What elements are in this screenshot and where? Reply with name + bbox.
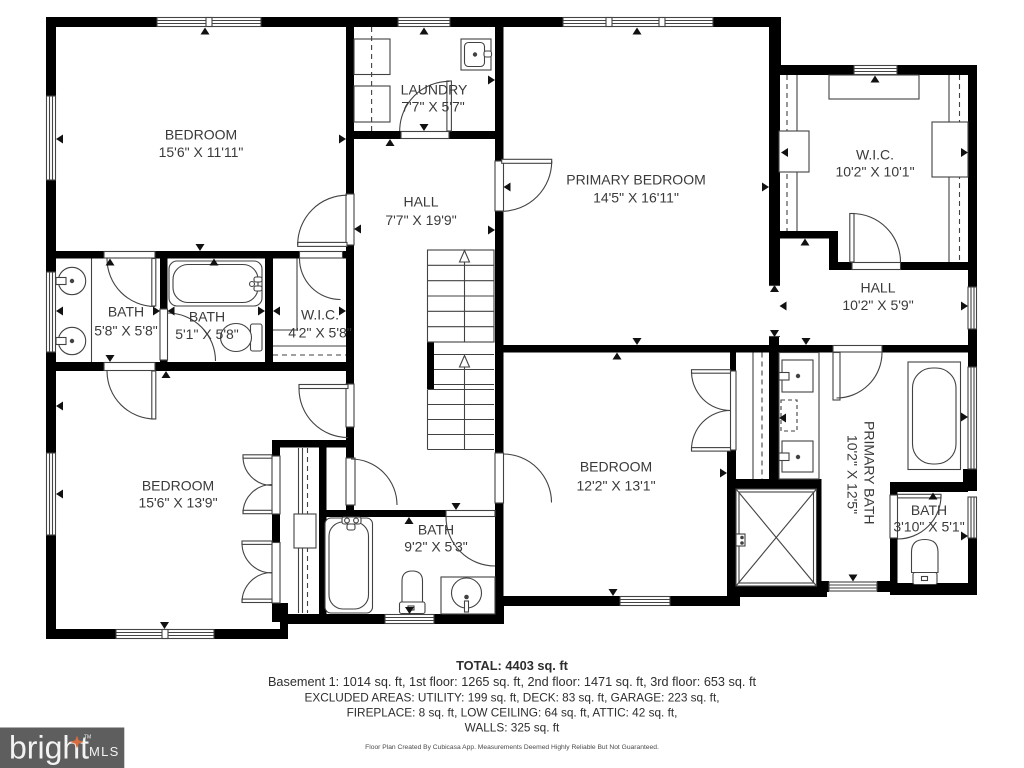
svg-text:PRIMARY BATH: PRIMARY BATH [862,421,878,524]
svg-text:BEDROOM: BEDROOM [580,459,652,475]
svg-text:BATH: BATH [418,522,454,538]
svg-text:LAUNDRY: LAUNDRY [401,82,468,98]
svg-text:PRIMARY BEDROOM: PRIMARY BEDROOM [566,172,706,188]
svg-text:EXCLUDED AREAS: UTILITY: 199 s: EXCLUDED AREAS: UTILITY: 199 sq. ft, DEC… [304,691,719,705]
svg-text:TM: TM [84,735,91,741]
svg-text:12'2" X 13'1": 12'2" X 13'1" [576,478,655,494]
svg-text:10'2" X 12'5": 10'2" X 12'5" [844,435,860,514]
svg-text:HALL: HALL [860,280,895,296]
svg-text:TOTAL: 4403 sq. ft: TOTAL: 4403 sq. ft [456,658,569,673]
svg-text:MLS: MLS [89,744,120,759]
svg-text:W.I.C.: W.I.C. [856,147,894,163]
svg-text:FIREPLACE: 8 sq. ft, LOW CEILI: FIREPLACE: 8 sq. ft, LOW CEILING: 64 sq.… [347,706,678,720]
svg-text:14'5" X 16'11": 14'5" X 16'11" [593,190,679,206]
svg-text:WALLS: 325 sq. ft: WALLS: 325 sq. ft [465,721,560,735]
svg-text:7'7" X 19'9": 7'7" X 19'9" [385,212,456,228]
svg-text:BEDROOM: BEDROOM [165,127,237,143]
svg-text:BATH: BATH [108,304,144,320]
svg-text:15'6" X 11'11": 15'6" X 11'11" [159,144,244,160]
svg-text:9'2" X 5'3": 9'2" X 5'3" [404,539,468,555]
svg-text:5'8" X 5'8": 5'8" X 5'8" [94,323,158,339]
svg-text:7'7" X 5'7": 7'7" X 5'7" [401,99,465,115]
svg-text:Basement 1: 1014 sq. ft, 1st f: Basement 1: 1014 sq. ft, 1st floor: 1265… [268,675,757,689]
svg-text:BATH: BATH [911,502,947,518]
svg-text:HALL: HALL [403,194,438,210]
svg-text:10'2" X 5'9": 10'2" X 5'9" [842,297,913,313]
svg-text:BEDROOM: BEDROOM [142,478,214,494]
svg-text:15'6" X 13'9": 15'6" X 13'9" [138,495,217,511]
svg-text:5'1" X 5'8": 5'1" X 5'8" [175,326,239,342]
svg-text:10'2" X 10'1": 10'2" X 10'1" [835,164,914,180]
svg-text:BATH: BATH [189,309,225,325]
svg-text:4'2" X 5'8": 4'2" X 5'8" [288,325,352,341]
svg-text:Floor Plan Created By Cubicasa: Floor Plan Created By Cubicasa App. Meas… [365,744,659,751]
svg-text:W.I.C.: W.I.C. [301,307,339,323]
svg-text:3'10" X 5'1": 3'10" X 5'1" [893,519,964,535]
